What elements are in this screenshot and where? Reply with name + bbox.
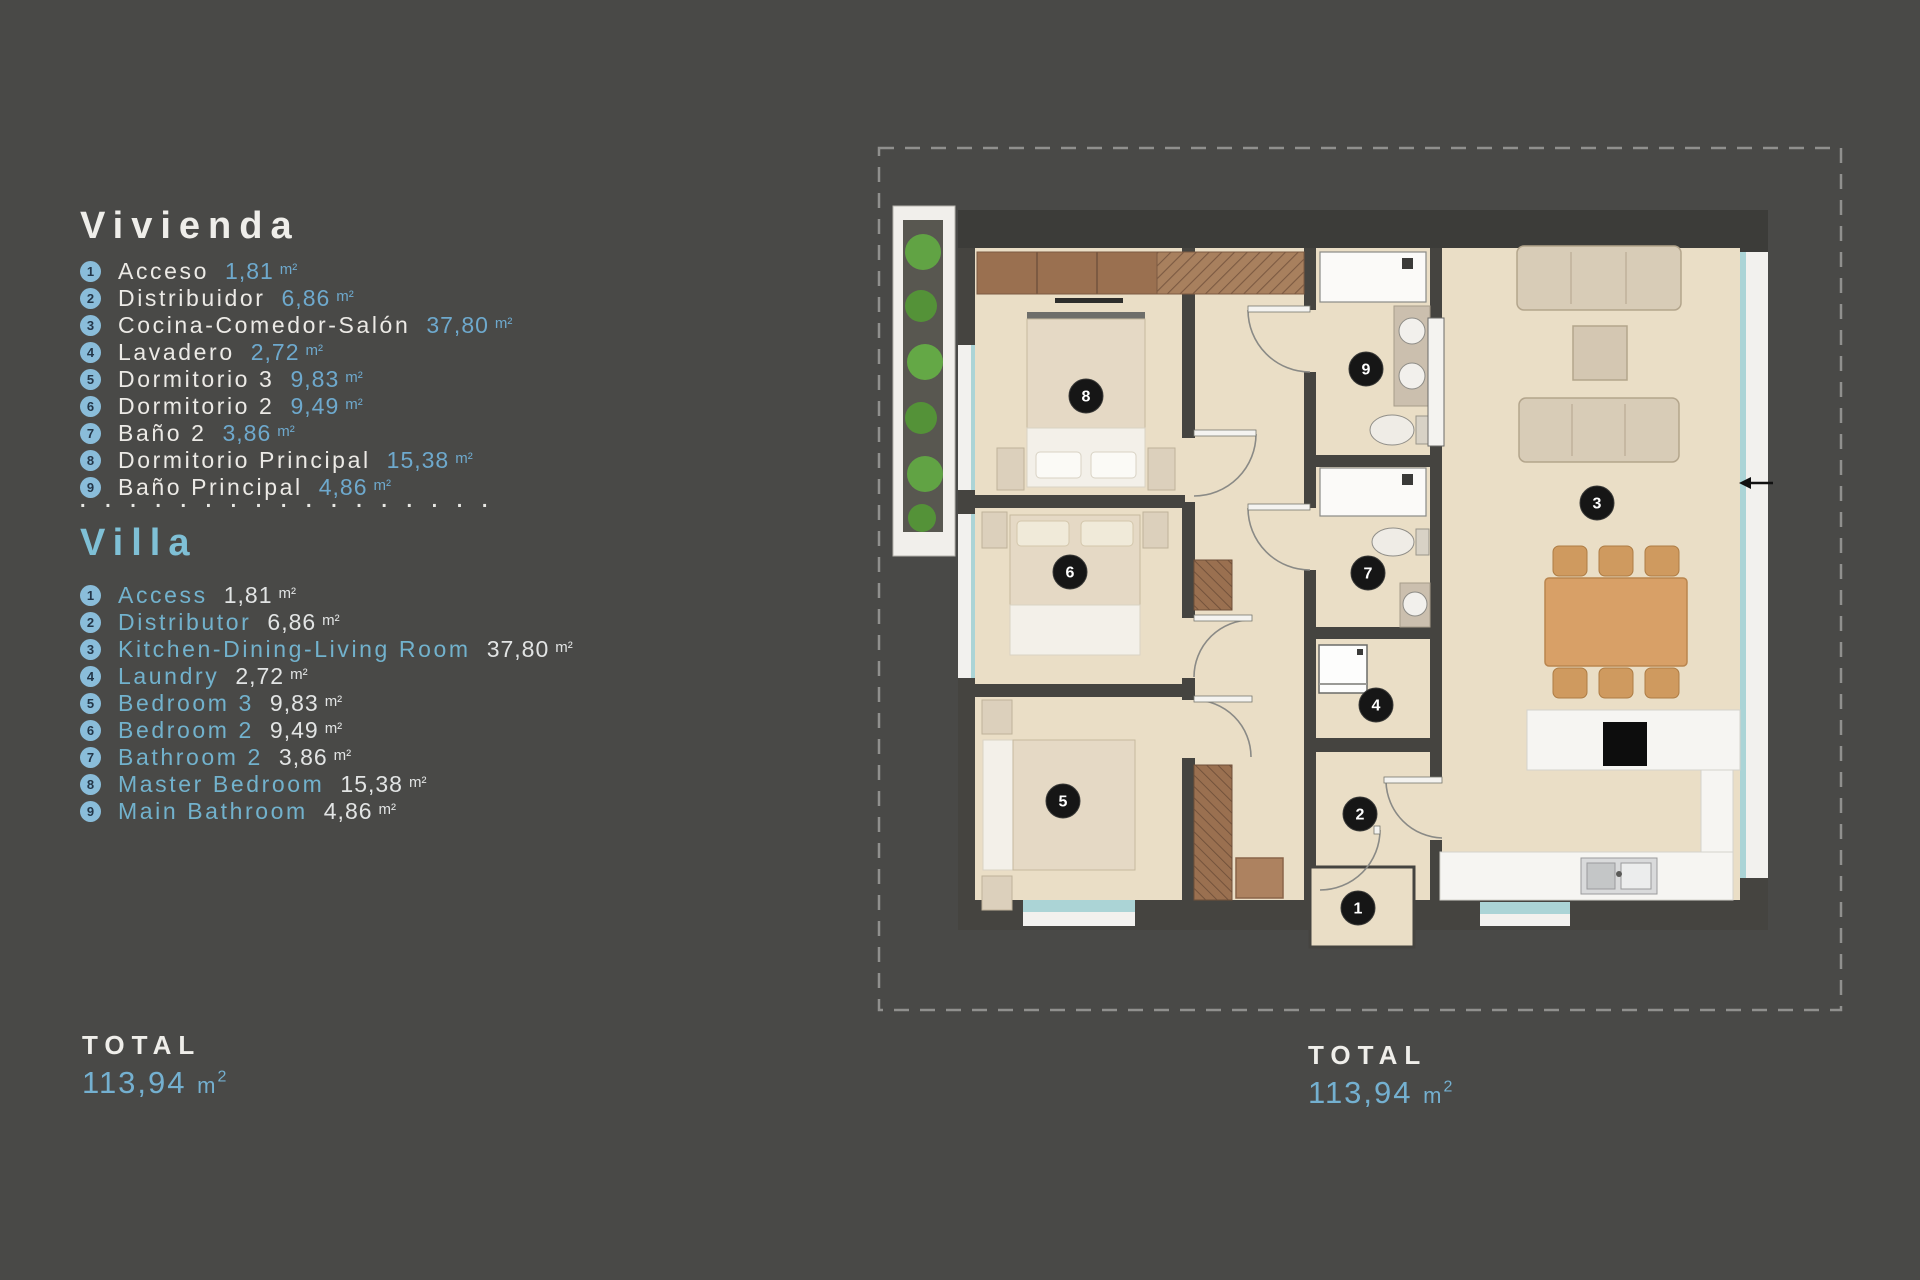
room-name: Bedroom 2 — [118, 717, 254, 744]
room-area: 6,86 — [282, 285, 331, 312]
room-marker-5: 5 — [1046, 784, 1080, 818]
room-name: Baño 2 — [118, 420, 207, 447]
room-name: Dormitorio 2 — [118, 393, 274, 420]
room-area: 9,49 — [270, 717, 319, 744]
page: { "colors": { "background": "#494947", "… — [0, 0, 1920, 1280]
room-area: 37,80 — [426, 312, 489, 339]
plan-total-value: 113,94 m2 — [1308, 1075, 1454, 1111]
room-name: Access — [118, 582, 208, 609]
legend-item-villa-7: 7Bathroom 23,86m² — [80, 744, 573, 771]
villa-list: 1Access1,81m²2Distributor6,86m²3Kitchen-… — [80, 582, 573, 825]
room-area: 6,86 — [267, 609, 316, 636]
legend-item-villa-5: 5Bedroom 39,83m² — [80, 690, 573, 717]
villa-title: Villa — [80, 522, 197, 565]
room-area: 15,38 — [340, 771, 403, 798]
area-unit: m² — [305, 342, 323, 359]
sliding-door-panel — [1428, 318, 1444, 446]
kitchen-window — [1480, 902, 1570, 914]
room-name: Master Bedroom — [118, 771, 324, 798]
item-number-badge: 2 — [80, 288, 101, 309]
legend-item-es-7: 7Baño 23,86m² — [80, 420, 512, 447]
area-unit: m² — [322, 612, 340, 629]
svg-text:6: 6 — [1066, 565, 1075, 582]
room-area: 2,72 — [235, 663, 284, 690]
room-name: Laundry — [118, 663, 219, 690]
legend-item-es-6: 6Dormitorio 29,49m² — [80, 393, 512, 420]
room-name: Cocina-Comedor-Salón — [118, 312, 410, 339]
room-area: 3,86 — [279, 744, 328, 771]
item-number-badge: 6 — [80, 720, 101, 741]
dining-set — [1545, 546, 1687, 698]
area-unit: m² — [379, 801, 397, 818]
room-name: Dormitorio Principal — [118, 447, 371, 474]
area-unit: m² — [277, 423, 295, 440]
area-unit: m² — [345, 396, 363, 413]
room-area: 9,83 — [270, 690, 319, 717]
room-area: 15,38 — [387, 447, 450, 474]
room-name: Kitchen-Dining-Living Room — [118, 636, 471, 663]
legend-item-villa-4: 4Laundry2,72m² — [80, 663, 573, 690]
room-area: 9,83 — [290, 366, 339, 393]
room-name: Bedroom 3 — [118, 690, 254, 717]
room-area: 3,86 — [223, 420, 272, 447]
item-number-badge: 4 — [80, 666, 101, 687]
legend-total-label: TOTAL — [82, 1030, 228, 1061]
room-marker-4: 4 — [1359, 688, 1393, 722]
room-area: 2,72 — [251, 339, 300, 366]
item-number-badge: 8 — [80, 450, 101, 471]
room-name: Lavadero — [118, 339, 235, 366]
svg-text:7: 7 — [1364, 566, 1373, 583]
room-marker-9: 9 — [1349, 352, 1383, 386]
legend-item-villa-9: 9Main Bathroom4,86m² — [80, 798, 573, 825]
room-name: Distribuidor — [118, 285, 266, 312]
item-number-badge: 3 — [80, 315, 101, 336]
legend-item-villa-6: 6Bedroom 29,49m² — [80, 717, 573, 744]
left-window — [958, 345, 975, 702]
item-number-badge: 1 — [80, 261, 101, 282]
svg-text:2: 2 — [1356, 807, 1365, 824]
room-area: 37,80 — [487, 636, 550, 663]
room-name: Acceso — [118, 258, 209, 285]
legend-item-es-4: 4Lavadero2,72m² — [80, 339, 512, 366]
area-unit: m² — [325, 720, 343, 737]
room-marker-8: 8 — [1069, 379, 1103, 413]
plan-total: TOTAL 113,94 m2 — [1308, 1040, 1454, 1111]
svg-text:9: 9 — [1362, 362, 1371, 379]
dotted-separator: . . . . . . . . . . . . . . . . . — [80, 490, 494, 513]
room-area: 4,86 — [324, 798, 373, 825]
item-number-badge: 6 — [80, 396, 101, 417]
item-number-badge: 4 — [80, 342, 101, 363]
legend-total-value: 113,94 m2 — [82, 1065, 228, 1101]
room-marker-2: 2 — [1343, 797, 1377, 831]
svg-text:8: 8 — [1082, 389, 1091, 406]
legend-item-villa-1: 1Access1,81m² — [80, 582, 573, 609]
svg-text:5: 5 — [1059, 794, 1068, 811]
laundry-washer — [1319, 645, 1367, 693]
room-name: Dormitorio 3 — [118, 366, 274, 393]
item-number-badge: 7 — [80, 423, 101, 444]
room-marker-6: 6 — [1053, 555, 1087, 589]
legend-item-villa-8: 8Master Bedroom15,38m² — [80, 771, 573, 798]
right-window — [1740, 210, 1768, 930]
legend-item-villa-3: 3Kitchen-Dining-Living Room37,80m² — [80, 636, 573, 663]
item-number-badge: 3 — [80, 639, 101, 660]
item-number-badge: 5 — [80, 693, 101, 714]
kitchen-window-frame — [1480, 914, 1570, 926]
room-name: Main Bathroom — [118, 798, 308, 825]
area-unit: m² — [325, 693, 343, 710]
room-area: 1,81 — [225, 258, 274, 285]
legend-total: TOTAL 113,94 m2 — [82, 1030, 228, 1101]
area-unit: m² — [345, 369, 363, 386]
bedroom3-window — [1023, 900, 1135, 912]
area-unit: m² — [280, 261, 298, 278]
area-unit: m² — [279, 585, 297, 602]
area-unit: m² — [409, 774, 427, 791]
area-unit: m² — [555, 639, 573, 656]
top-wall — [958, 210, 1768, 250]
room-name: Bathroom 2 — [118, 744, 263, 771]
room-marker-1: 1 — [1341, 891, 1375, 925]
item-number-badge: 1 — [80, 585, 101, 606]
floor-plan: 123456789 — [875, 140, 1845, 1020]
area-unit: m² — [334, 747, 352, 764]
item-number-badge: 2 — [80, 612, 101, 633]
area-unit: m² — [455, 450, 473, 467]
svg-text:3: 3 — [1593, 496, 1602, 513]
svg-text:4: 4 — [1372, 698, 1381, 715]
room-marker-7: 7 — [1351, 556, 1385, 590]
legend-item-es-1: 1Acceso1,81m² — [80, 258, 512, 285]
svg-text:1: 1 — [1354, 901, 1363, 918]
room-marker-3: 3 — [1580, 486, 1614, 520]
item-number-badge: 9 — [80, 801, 101, 822]
room-name: Distributor — [118, 609, 251, 636]
legend-item-villa-2: 2Distributor6,86m² — [80, 609, 573, 636]
legend-item-es-8: 8Dormitorio Principal15,38m² — [80, 447, 512, 474]
plan-total-label: TOTAL — [1308, 1040, 1454, 1071]
bedroom3-window-frame — [1023, 912, 1135, 926]
item-number-badge: 8 — [80, 774, 101, 795]
legend-item-es-2: 2Distribuidor6,86m² — [80, 285, 512, 312]
area-unit: m² — [495, 315, 513, 332]
room-area: 1,81 — [224, 582, 273, 609]
item-number-badge: 7 — [80, 747, 101, 768]
legend-item-es-5: 5Dormitorio 39,83m² — [80, 366, 512, 393]
vivienda-title: Vivienda — [80, 205, 300, 248]
area-unit: m² — [290, 666, 308, 683]
area-unit: m² — [336, 288, 354, 305]
legend-item-es-3: 3Cocina-Comedor-Salón37,80m² — [80, 312, 512, 339]
room-area: 9,49 — [290, 393, 339, 420]
vivienda-list: 1Acceso1,81m²2Distribuidor6,86m²3Cocina-… — [80, 258, 512, 501]
garden-strip — [893, 206, 955, 556]
item-number-badge: 5 — [80, 369, 101, 390]
